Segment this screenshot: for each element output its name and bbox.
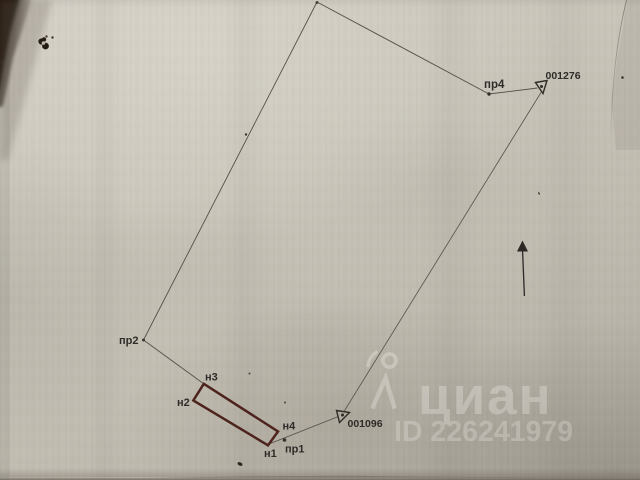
svg-text:н1: н1 <box>264 448 277 460</box>
svg-text:001096: 001096 <box>348 418 383 430</box>
svg-text:пр2: пр2 <box>119 335 138 347</box>
svg-text:н2: н2 <box>177 397 190 409</box>
svg-text:пр4: пр4 <box>484 79 505 91</box>
svg-text:н4: н4 <box>283 421 297 433</box>
svg-text:н3: н3 <box>205 372 218 384</box>
svg-text:пр1: пр1 <box>285 444 304 456</box>
svg-text:ID 226241979: ID 226241979 <box>394 416 573 448</box>
svg-text:001276: 001276 <box>546 70 581 82</box>
